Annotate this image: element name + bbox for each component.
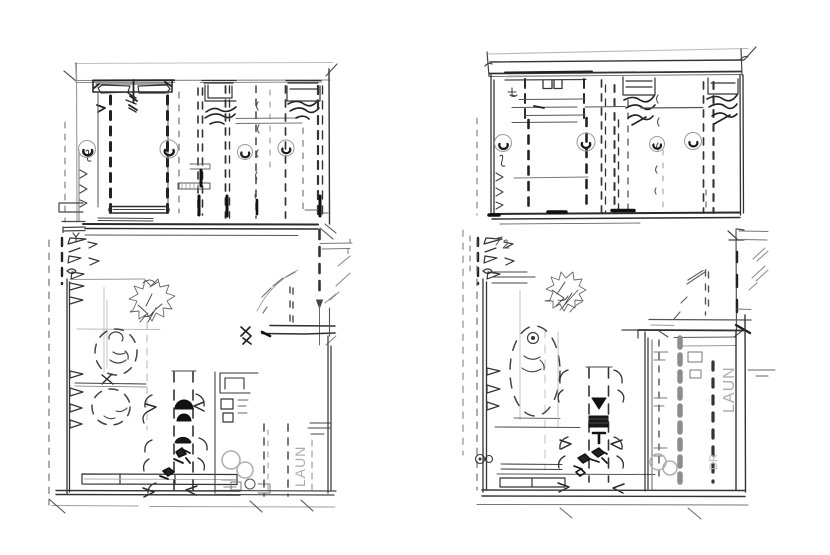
- svg-text:LAUN: LAUN: [721, 366, 738, 413]
- svg-text:DR: DR: [708, 454, 720, 470]
- svg-text:LAUN: LAUN: [292, 446, 308, 487]
